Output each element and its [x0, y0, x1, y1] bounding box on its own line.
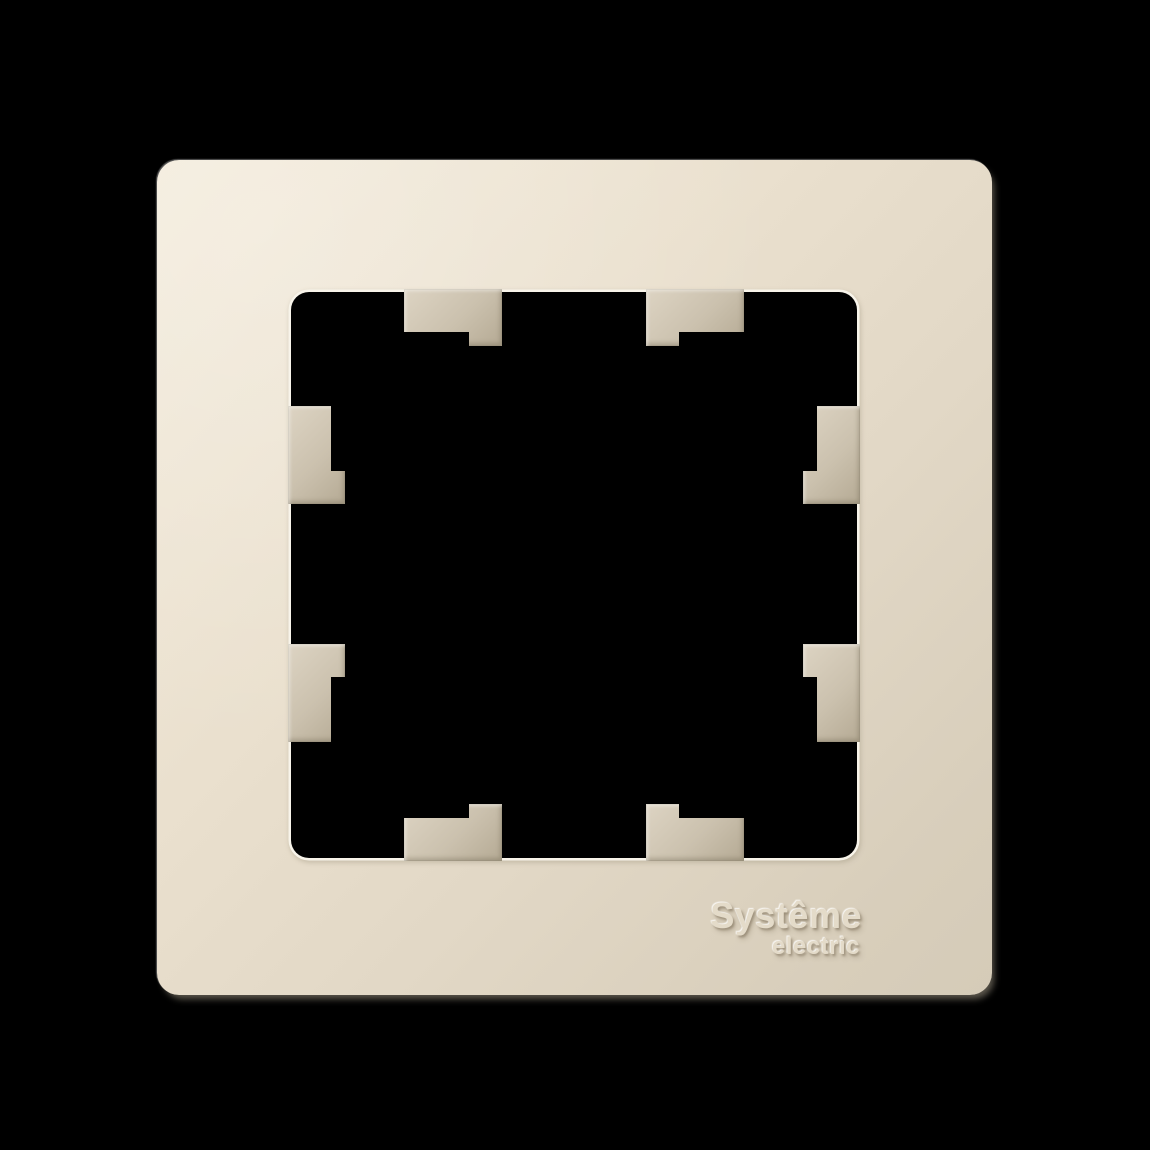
frame-window-opening	[291, 292, 857, 858]
brand-logo-line2: electric	[710, 935, 862, 959]
mounting-tab-bottom-left	[404, 804, 502, 861]
mounting-tab-top-right	[646, 289, 744, 346]
mounting-tab-bottom-right	[646, 804, 744, 861]
mounting-tab-right-lower	[803, 644, 860, 742]
mounting-tab-left-lower	[288, 644, 345, 742]
switch-frame-faceplate: Systême electric	[157, 160, 992, 995]
mounting-tab-top-left	[404, 289, 502, 346]
brand-logo: Systême electric	[710, 898, 862, 959]
product-photo-background: Systême electric	[0, 0, 1150, 1150]
brand-logo-line1: Systême	[710, 898, 862, 934]
mounting-tab-left-upper	[288, 406, 345, 504]
mounting-tab-right-upper	[803, 406, 860, 504]
